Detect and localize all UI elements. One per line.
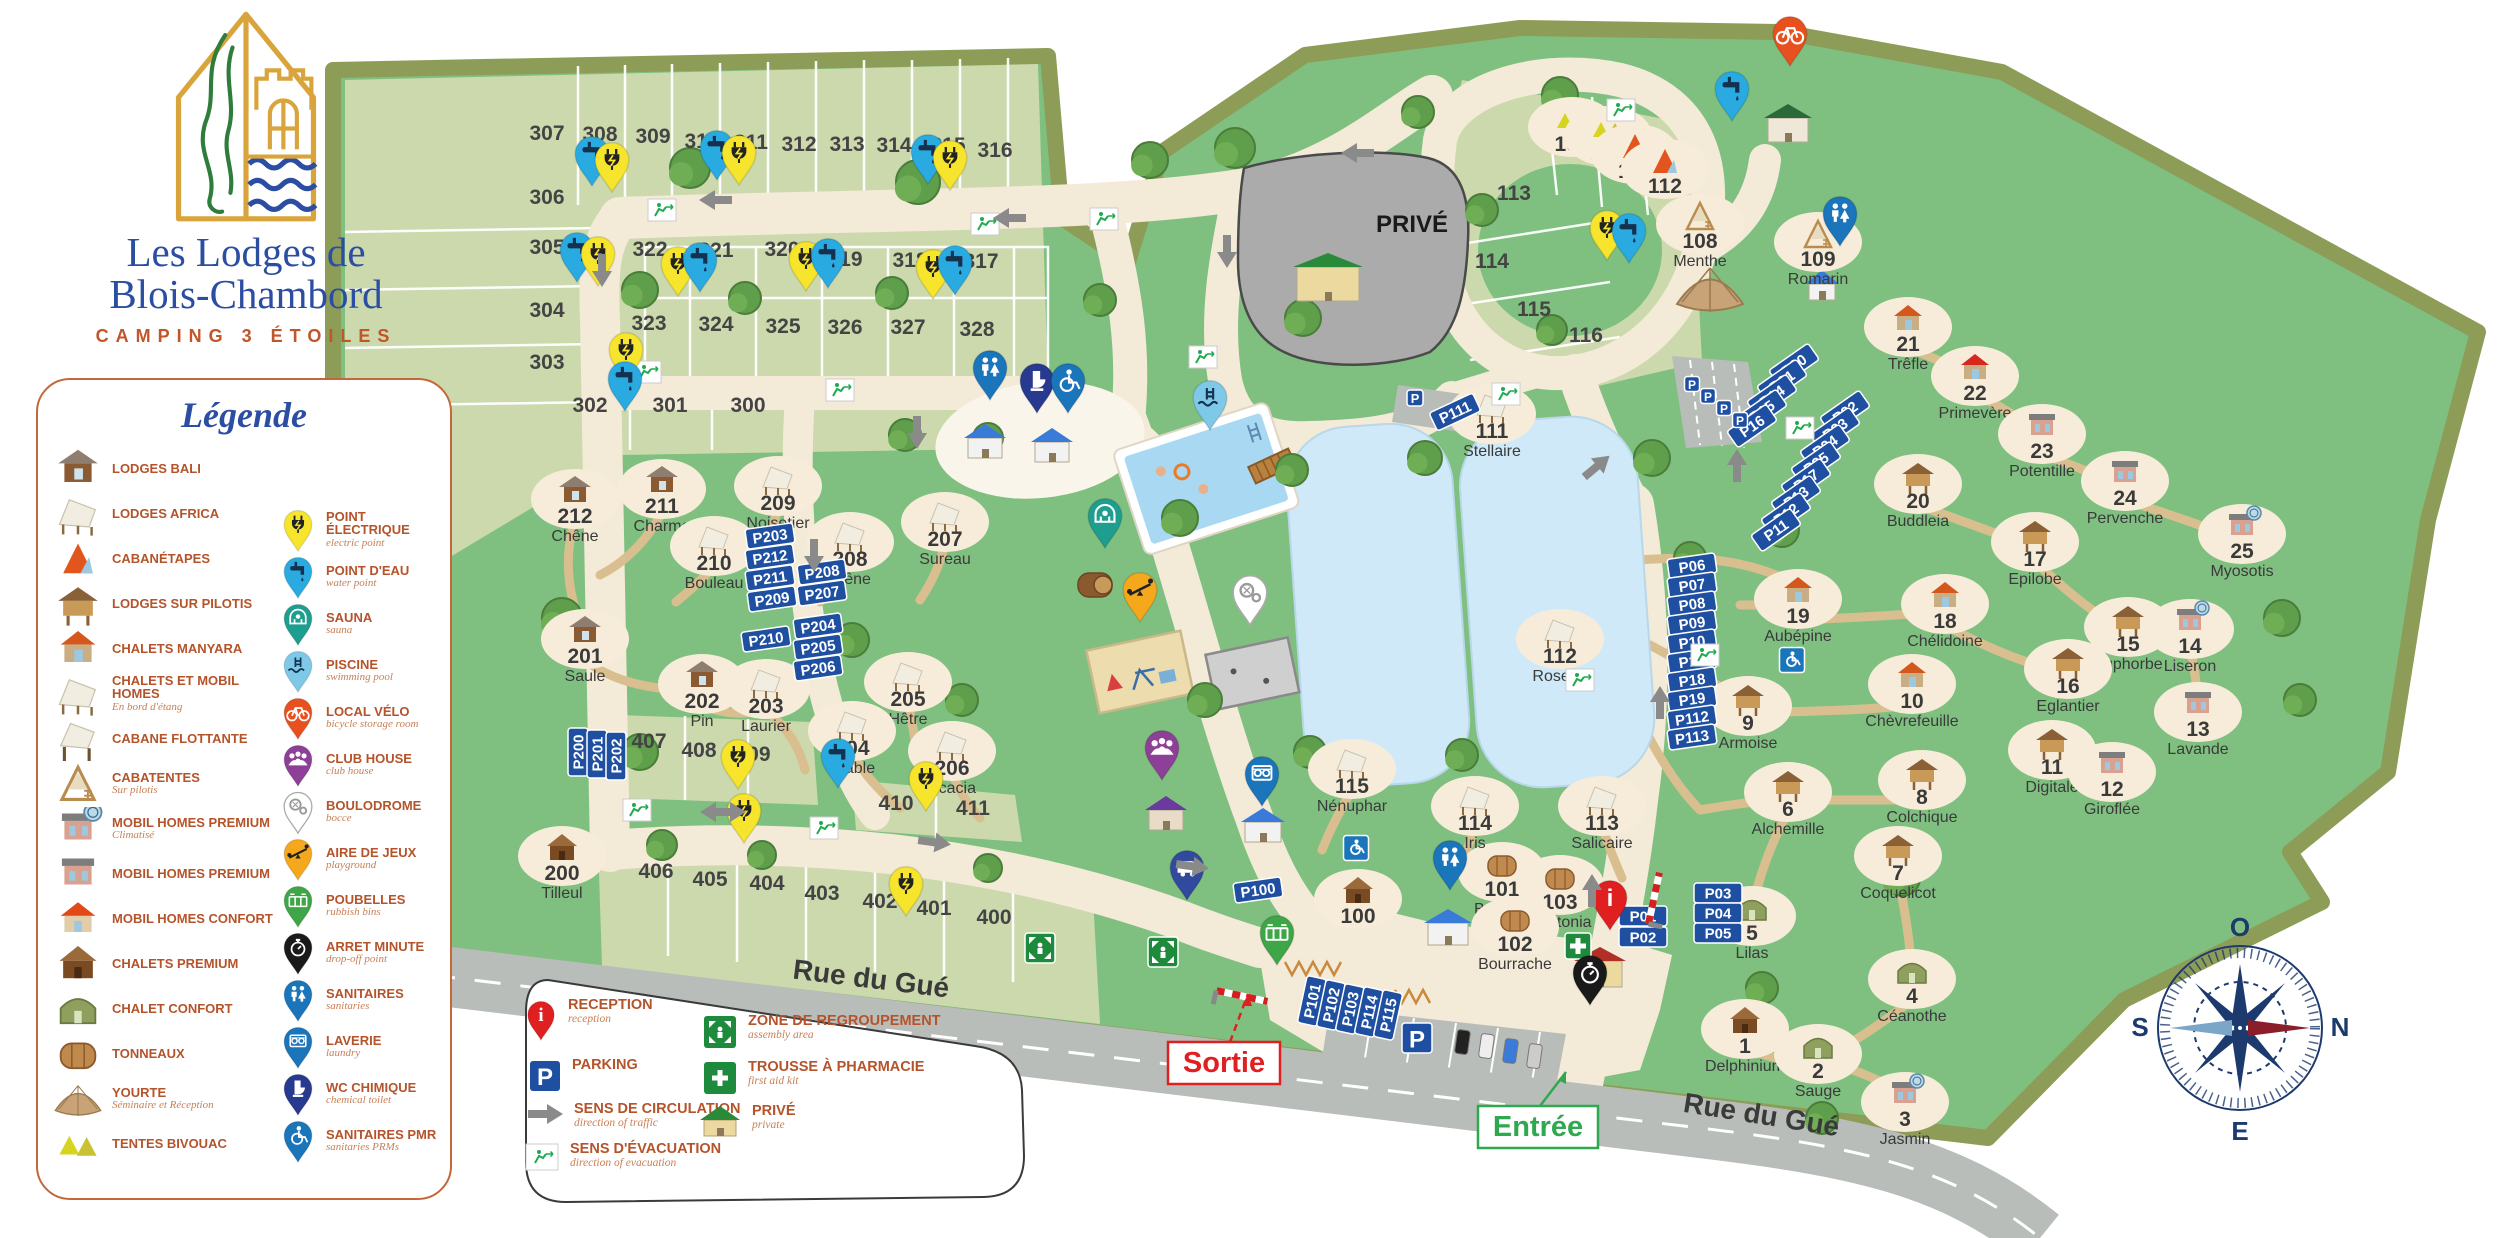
svg-text:P201: P201	[590, 736, 607, 771]
private-house-icon	[700, 1106, 740, 1136]
svg-text:2: 2	[1812, 1060, 1824, 1083]
site-4: 4Céanothe	[1868, 949, 1956, 1025]
logo	[166, 6, 326, 224]
pitch-323: 323	[631, 312, 666, 335]
parking-sign-P02: P02	[1619, 927, 1667, 947]
svg-text:21: 21	[1896, 333, 1920, 356]
svg-text:Sortie: Sortie	[1183, 1047, 1265, 1079]
yourte-icon	[52, 1077, 104, 1121]
info-legend-item-sens-d-evacuation: SENS D'ÉVACUATIONdirection of evacuation	[524, 1142, 721, 1172]
legend-item-tentes-bivouac: TENTES BIVOUAC	[52, 1121, 280, 1166]
pitch-116: 116	[1569, 324, 1603, 347]
site-25: 25Myosotis	[2198, 504, 2286, 580]
svg-text:112: 112	[1648, 175, 1682, 198]
zone-de-regroupement-icon	[702, 1014, 738, 1050]
parking-p-sign: P	[1733, 413, 1748, 428]
private-label: PRIVÉ	[1376, 210, 1448, 238]
club-house-pin	[284, 745, 312, 786]
compass-west: O	[2230, 912, 2250, 942]
site-title: Les Lodges deBlois-Chambord	[0, 232, 492, 316]
chalet-confort-icon	[52, 987, 104, 1031]
compass-east: E	[2231, 1116, 2248, 1146]
lodges-bali-icon	[52, 447, 104, 491]
tree	[1465, 194, 1498, 226]
svg-text:Aubépine: Aubépine	[1764, 628, 1832, 645]
pitch-401: 401	[916, 897, 951, 920]
svg-text:P03: P03	[1705, 886, 1732, 903]
evacuation-sign	[1607, 99, 1635, 121]
legend-item-cabane-flottante: CABANE FLOTTANTE	[52, 716, 280, 761]
tree	[1083, 284, 1116, 316]
first-aid-icon	[704, 1062, 736, 1094]
local-velo-icon	[278, 694, 318, 741]
sanitaires-pmr-icon	[278, 1117, 318, 1164]
sauna-pin	[284, 604, 312, 645]
tentes-bivouac-icon	[52, 1122, 104, 1166]
svg-text:Delphinium: Delphinium	[1705, 1058, 1785, 1075]
svg-text:Lilas: Lilas	[1736, 945, 1769, 962]
svg-text:Trêfle: Trêfle	[1888, 356, 1928, 373]
svg-text:100: 100	[1340, 905, 1375, 928]
legend-item-club-house: CLUB HOUSEclub house	[278, 741, 450, 788]
svg-text:Eglantier: Eglantier	[2036, 698, 2100, 715]
pitch-403: 403	[804, 882, 839, 905]
svg-text:207: 207	[927, 528, 962, 551]
pitch-306: 306	[529, 186, 564, 209]
svg-text:Buddleia: Buddleia	[1887, 513, 1949, 530]
pitch-406: 406	[638, 860, 673, 883]
parking-sign-P01: P01	[1619, 906, 1667, 926]
site-18: 18Chélidoine	[1901, 574, 1989, 650]
svg-text:9: 9	[1742, 712, 1754, 735]
svg-text:Bouleau: Bouleau	[685, 575, 744, 592]
svg-text:Myosotis: Myosotis	[2210, 563, 2273, 580]
assembly-icon	[704, 1016, 736, 1048]
tree	[1131, 142, 1168, 178]
sanitaires-icon	[278, 976, 318, 1023]
tree	[2283, 684, 2316, 716]
point-d-eau-pin	[284, 557, 312, 598]
wc-chimique-icon	[278, 1070, 318, 1117]
local-velo-pin	[284, 698, 312, 739]
legend-item-cabatentes: CABATENTESSur pilotis	[52, 761, 280, 806]
svg-text:Stellaire: Stellaire	[1463, 443, 1521, 460]
svg-text:Céanothe: Céanothe	[1877, 1008, 1946, 1025]
svg-text:113: 113	[1585, 812, 1619, 835]
svg-text:7: 7	[1892, 862, 1904, 885]
svg-text:111: 111	[1476, 420, 1509, 443]
tree	[2263, 600, 2300, 636]
svg-text:25: 25	[2230, 540, 2254, 563]
svg-text:Laurier: Laurier	[741, 718, 791, 735]
pitch-301: 301	[652, 394, 687, 417]
legend-item-boulodrome: BOULODROMEbocce	[278, 788, 450, 835]
svg-text:5: 5	[1746, 922, 1758, 945]
tree	[747, 841, 776, 869]
svg-text:Jasmin: Jasmin	[1880, 1131, 1931, 1148]
laverie-pin	[284, 1027, 312, 1068]
evacuation-sign	[1189, 346, 1217, 368]
tree	[1745, 972, 1778, 1004]
svg-text:205: 205	[890, 688, 925, 711]
tree	[728, 282, 761, 314]
legend-item-chalet-confort: CHALET CONFORT	[52, 986, 280, 1031]
svg-text:Giroflée: Giroflée	[2084, 801, 2140, 818]
brand-block: Les Lodges deBlois-Chambord CAMPING 3 ÉT…	[0, 6, 492, 347]
svg-text:Chêne: Chêne	[551, 528, 598, 545]
evacuation-sign	[1786, 417, 1814, 439]
legend-item-local-velo: LOCAL VÉLObicycle storage room	[278, 694, 450, 741]
legend-item-laverie: LAVERIElaundry	[278, 1023, 450, 1070]
legend-item-point-d-eau: POINT D'EAUwater point	[278, 553, 450, 600]
svg-text:201: 201	[567, 645, 602, 668]
sens-d-evacuation-icon	[524, 1142, 560, 1172]
svg-text:Liseron: Liseron	[2164, 658, 2216, 675]
club-house-icon	[278, 741, 318, 788]
sanitaires-pmr-pin	[284, 1121, 312, 1162]
svg-text:Primevère: Primevère	[1939, 405, 2012, 422]
site-209: 209Noisetier	[734, 456, 822, 532]
accessible-sign	[1780, 648, 1805, 673]
pitch-314: 314	[876, 134, 911, 157]
poubelles-pin	[284, 886, 312, 927]
sanitaires-pin	[284, 980, 312, 1021]
site-115: 115Nénuphar	[1308, 739, 1396, 815]
private-area	[1238, 153, 1468, 365]
pitch-316: 316	[977, 139, 1012, 162]
compass-north: N	[2331, 1012, 2350, 1042]
tree	[1187, 683, 1222, 717]
chalets-manyara-icon	[52, 627, 104, 671]
tree	[875, 277, 908, 309]
pitch-300: 300	[730, 394, 765, 417]
evacuation-sign	[623, 799, 651, 821]
svg-text:Alchemille: Alchemille	[1752, 821, 1825, 838]
evacuation-sign	[826, 379, 854, 401]
info-legend-item-parking: PPARKING	[528, 1058, 638, 1094]
svg-text:P05: P05	[1705, 926, 1732, 943]
info-legend-item-trousse-a-pharmacie: TROUSSE À PHARMACIEfirst aid kit	[702, 1060, 924, 1096]
tree	[1214, 128, 1255, 168]
site-19: 19Aubépine	[1754, 569, 1842, 645]
site-112: 112	[1621, 139, 1709, 199]
mobil-homes-premium-icon	[52, 852, 104, 896]
site-10: 10Chèvrefeuille	[1865, 654, 1958, 730]
pitch-400: 400	[976, 906, 1011, 929]
pitch-303: 303	[529, 351, 564, 374]
point-electrique-pin	[284, 510, 312, 551]
parking-sign-P200: P200	[568, 728, 588, 776]
legend-item-wc-chimique: WC CHIMIQUEchemical toilet	[278, 1070, 450, 1117]
legend-item-aire-de-jeux: AIRE DE JEUXplayground	[278, 835, 450, 882]
svg-text:23: 23	[2030, 440, 2053, 463]
legend-item-lodges-bali: LODGES BALI	[52, 446, 280, 491]
svg-text:114: 114	[1458, 812, 1492, 835]
site-102: 102Bourrache	[1471, 897, 1559, 973]
tree	[646, 830, 677, 860]
pitch-405: 405	[692, 868, 727, 891]
svg-text:203: 203	[748, 695, 783, 718]
pitch-114: 114	[1475, 250, 1509, 273]
site-24: 24Pervenche	[2081, 451, 2169, 527]
point-electrique-icon	[278, 506, 318, 553]
legend-item-arret-minute: ARRET MINUTEdrop-off point	[278, 929, 450, 976]
svg-text:212: 212	[557, 505, 592, 528]
svg-text:P200: P200	[571, 734, 588, 769]
svg-text:211: 211	[645, 495, 679, 518]
site-8: 8Colchique	[1878, 750, 1966, 826]
parking-sign-P03: P03	[1694, 883, 1742, 903]
parking-icon: P	[530, 1061, 560, 1091]
parking-sign-P04: P04	[1694, 903, 1742, 923]
svg-text:22: 22	[1963, 382, 1986, 405]
prive-icon	[698, 1104, 742, 1140]
pitch-302: 302	[572, 394, 607, 417]
svg-text:Colchique: Colchique	[1886, 809, 1957, 826]
evacuation-sign	[648, 199, 676, 221]
mobil-homes-premium-climatise-icon	[52, 807, 104, 851]
site-subtitle: CAMPING 3 ÉTOILES	[0, 326, 492, 347]
pitch-304: 304	[529, 299, 564, 322]
tonneaux-icon	[52, 1032, 104, 1076]
chalets-premium-icon	[52, 942, 104, 986]
tree	[1284, 300, 1321, 336]
parking-p-sign: P	[1717, 401, 1732, 416]
parking-p-sign: P	[1685, 377, 1700, 392]
point-d-eau-icon	[278, 553, 318, 600]
chalets-et-mobil-homes-icon	[52, 672, 104, 716]
legend-item-cabanetapes: CABANÉTAPES	[52, 536, 280, 581]
pitch-326: 326	[827, 316, 862, 339]
boulodrome-pin	[284, 792, 312, 833]
svg-text:6: 6	[1782, 798, 1794, 821]
pitch-327: 327	[890, 316, 925, 339]
site-100: 100	[1314, 869, 1402, 929]
svg-text:Epilobe: Epilobe	[2008, 571, 2061, 588]
svg-text:17: 17	[2023, 548, 2046, 571]
legend-item-point-electrique: POINT ÉLECTRIQUEelectric point	[278, 506, 450, 553]
cabane-flottante-icon	[52, 717, 104, 761]
svg-text:P: P	[1720, 402, 1728, 416]
svg-text:20: 20	[1906, 490, 1929, 513]
tree	[1401, 96, 1434, 128]
pitch-404: 404	[749, 872, 784, 895]
legend-item-chalets-premium: CHALETS PREMIUM	[52, 941, 280, 986]
parking-p-sign: P	[1402, 1023, 1432, 1054]
site-20: 20Buddleia	[1874, 454, 1962, 530]
legend-item-lodges-sur-pilotis: LODGES SUR PILOTIS	[52, 581, 280, 626]
wc-chimique-pin	[284, 1074, 312, 1115]
laverie-icon	[278, 1023, 318, 1070]
legend-item-chalets-et-mobil-homes: CHALETS ET MOBIL HOMESEn bord d'étang	[52, 671, 280, 716]
assembly-area-sign	[1148, 937, 1178, 967]
sens-de-circulation-icon	[524, 1102, 564, 1126]
svg-text:P: P	[537, 1064, 553, 1091]
pitch-309: 309	[635, 125, 670, 148]
site-6: 6Alchemille	[1744, 762, 1832, 838]
site-7: 7Coquelicot	[1854, 826, 1942, 902]
info-legend-item-zone-de-regroupement: ZONE DE REGROUPEMENTassembly area	[702, 1014, 941, 1050]
svg-text:i: i	[538, 1005, 543, 1026]
evacuation-icon	[526, 1144, 558, 1170]
tree	[973, 854, 1002, 882]
svg-text:P: P	[1688, 378, 1696, 392]
info-legend-item-prive: PRIVÉprivate	[698, 1104, 796, 1140]
pitch-313: 313	[829, 133, 864, 156]
svg-text:1: 1	[1739, 1035, 1751, 1058]
svg-text:Potentille: Potentille	[2009, 463, 2075, 480]
svg-text:Pervenche: Pervenche	[2087, 510, 2164, 527]
lodges-africa-icon	[52, 492, 104, 536]
svg-text:Coquelicot: Coquelicot	[1860, 885, 1936, 902]
svg-text:Armoise: Armoise	[1719, 735, 1778, 752]
legend-title: Légende	[38, 394, 450, 436]
evacuation-sign	[1090, 208, 1118, 230]
assembly-area-sign	[1025, 933, 1055, 963]
reception-icon: i	[524, 998, 558, 1042]
sauna-barrel	[1078, 573, 1112, 597]
svg-text:Lavande: Lavande	[2167, 741, 2228, 758]
pitch-408: 408	[681, 739, 716, 762]
svg-text:109: 109	[1800, 248, 1835, 271]
trousse-a-pharmacie-icon	[702, 1060, 738, 1096]
legend-item-mobil-homes-confort: MOBIL HOMES CONFORT	[52, 896, 280, 941]
compass-south: S	[2131, 1012, 2148, 1042]
parking-p-sign: P	[1407, 390, 1423, 406]
aire-de-jeux-pin	[284, 839, 312, 880]
svg-text:202: 202	[684, 690, 719, 713]
tree	[1161, 500, 1198, 536]
legend-item-chalets-manyara: CHALETS MANYARA	[52, 626, 280, 671]
svg-text:Nénuphar: Nénuphar	[1317, 798, 1388, 815]
tree	[1445, 739, 1478, 771]
svg-text:15: 15	[2116, 633, 2140, 656]
tree	[621, 272, 658, 308]
site-1: 1Delphinium	[1701, 999, 1789, 1075]
pitch-411: 411	[956, 797, 990, 820]
svg-text:P04: P04	[1705, 906, 1732, 923]
legend-item-sanitaires-pmr: SANITAIRES PMRsanitaries PRMs	[278, 1117, 450, 1164]
parking-sign-P201: P201	[587, 730, 607, 778]
evacuation-sign	[1492, 383, 1520, 405]
svg-text:4: 4	[1906, 985, 1918, 1008]
evacuation-sign	[1691, 644, 1719, 666]
svg-text:Bourrache: Bourrache	[1478, 956, 1552, 973]
pitch-410: 410	[878, 792, 913, 815]
svg-text:14: 14	[2178, 635, 2202, 658]
svg-text:i: i	[1607, 885, 1614, 912]
svg-text:108: 108	[1682, 230, 1717, 253]
svg-text:Sureau: Sureau	[919, 551, 971, 568]
legend-item-lodges-africa: LODGES AFRICA	[52, 491, 280, 536]
legend-item-piscine: PISCINEswimming pool	[278, 647, 450, 694]
svg-text:210: 210	[696, 552, 731, 575]
svg-text:Salicaire: Salicaire	[1571, 835, 1632, 852]
svg-text:112: 112	[1543, 645, 1577, 668]
legend-panel: Légende LODGES BALILODGES AFRICACABANÉTA…	[36, 378, 452, 1200]
svg-text:200: 200	[544, 862, 579, 885]
svg-text:3: 3	[1899, 1108, 1911, 1131]
svg-text:13: 13	[2186, 718, 2209, 741]
campsite-map-page: 212Chêne211Charme209Noisetier210Bouleau2…	[0, 0, 2500, 1238]
tree	[1275, 454, 1308, 486]
svg-text:10: 10	[1900, 690, 1923, 713]
svg-text:19: 19	[1786, 605, 1809, 628]
reception-pin: i	[528, 1001, 554, 1040]
evacuation-sign	[971, 213, 999, 235]
svg-text:Sauge: Sauge	[1795, 1083, 1841, 1100]
accessible-sign	[1344, 836, 1369, 861]
piscine-pin	[284, 651, 312, 692]
svg-text:24: 24	[2113, 487, 2137, 510]
svg-text:P: P	[1704, 390, 1712, 404]
piscine-icon	[278, 647, 318, 694]
svg-text:Saule: Saule	[565, 668, 606, 685]
parking-p-sign: P	[1701, 389, 1716, 404]
svg-text:Pin: Pin	[690, 713, 713, 730]
pitch-307: 307	[529, 122, 564, 145]
evacuation-sign	[810, 817, 838, 839]
info-legend-item-reception: iRECEPTIONreception	[524, 998, 653, 1042]
pitch-324: 324	[698, 313, 733, 336]
svg-text:P: P	[1409, 1027, 1425, 1054]
svg-text:Iris: Iris	[1464, 835, 1485, 852]
svg-text:Entrée: Entrée	[1493, 1111, 1583, 1143]
mobil-homes-confort-icon	[52, 897, 104, 941]
pitch-312: 312	[781, 133, 816, 156]
svg-text:16: 16	[2056, 675, 2079, 698]
svg-text:102: 102	[1497, 933, 1532, 956]
svg-text:P: P	[1736, 414, 1744, 428]
pond-west	[1283, 420, 1474, 791]
svg-text:P202: P202	[609, 738, 626, 773]
svg-text:Menthe: Menthe	[1673, 253, 1726, 270]
pitch-407: 407	[631, 730, 666, 753]
evacuation-sign	[1566, 669, 1594, 691]
svg-text:Tilleul: Tilleul	[541, 885, 582, 902]
svg-text:P02: P02	[1630, 930, 1657, 947]
pond-east	[1456, 412, 1659, 792]
legend-item-tonneaux: TONNEAUX	[52, 1031, 280, 1076]
svg-text:11: 11	[2041, 756, 2064, 779]
parking-sign-P05: P05	[1694, 923, 1742, 943]
legend-item-sauna: SAUNAsauna	[278, 600, 450, 647]
svg-text:Chèvrefeuille: Chèvrefeuille	[1865, 713, 1958, 730]
cabatentes-icon	[52, 762, 104, 806]
boulodrome-icon	[278, 788, 318, 835]
parking-sign-P202: P202	[606, 732, 626, 780]
legend-item-yourte: YOURTESéminaire et Réception	[52, 1076, 280, 1121]
tree	[1633, 440, 1670, 476]
svg-text:12: 12	[2100, 778, 2123, 801]
legend-item-poubelles: POUBELLESrubbish bins	[278, 882, 450, 929]
poubelles-icon	[278, 882, 318, 929]
svg-text:Chélidoine: Chélidoine	[1907, 633, 1983, 650]
aire-de-jeux-icon	[278, 835, 318, 882]
sauna-icon	[278, 600, 318, 647]
site-16: 16Eglantier	[2024, 639, 2112, 715]
tree	[1407, 441, 1442, 475]
svg-text:18: 18	[1933, 610, 1957, 633]
cabanetapes-icon	[52, 537, 104, 581]
parking-icon: P	[528, 1058, 562, 1094]
svg-text:Romarin: Romarin	[1788, 271, 1848, 288]
pitch-113: 113	[1497, 182, 1531, 205]
site-22: 22Primevère	[1931, 346, 2019, 422]
lodges-sur-pilotis-icon	[52, 582, 104, 626]
pitch-328: 328	[959, 318, 994, 341]
legend-item-mobil-homes-premium-climatise: MOBIL HOMES PREMIUMClimatisé	[52, 806, 280, 851]
